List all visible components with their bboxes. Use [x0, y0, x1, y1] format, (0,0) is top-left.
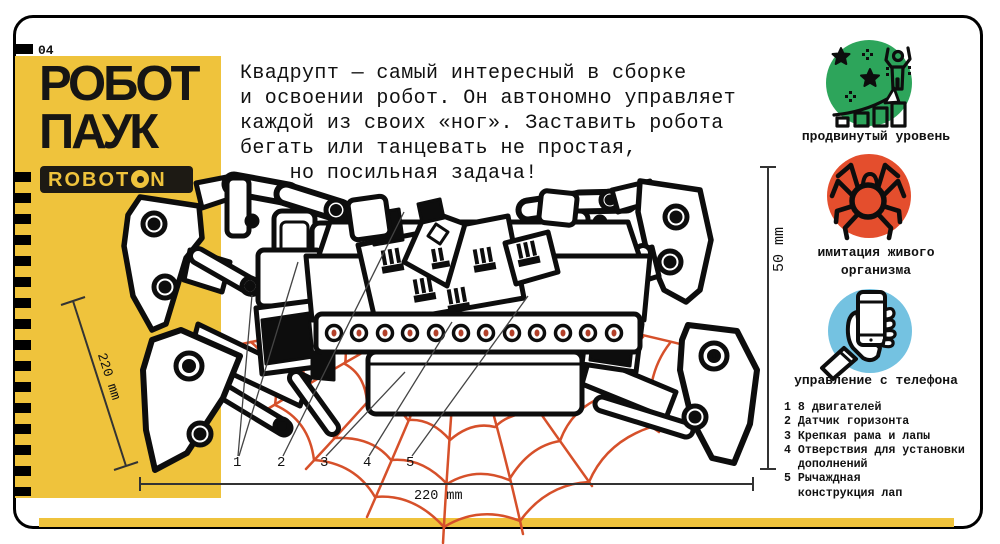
- svg-text:1: 1: [233, 455, 241, 471]
- svg-text:220 mm: 220 mm: [414, 489, 463, 504]
- svg-text:3: 3: [320, 455, 328, 471]
- svg-text:5: 5: [406, 455, 414, 471]
- svg-text:2: 2: [277, 455, 285, 471]
- svg-text:4: 4: [363, 455, 371, 471]
